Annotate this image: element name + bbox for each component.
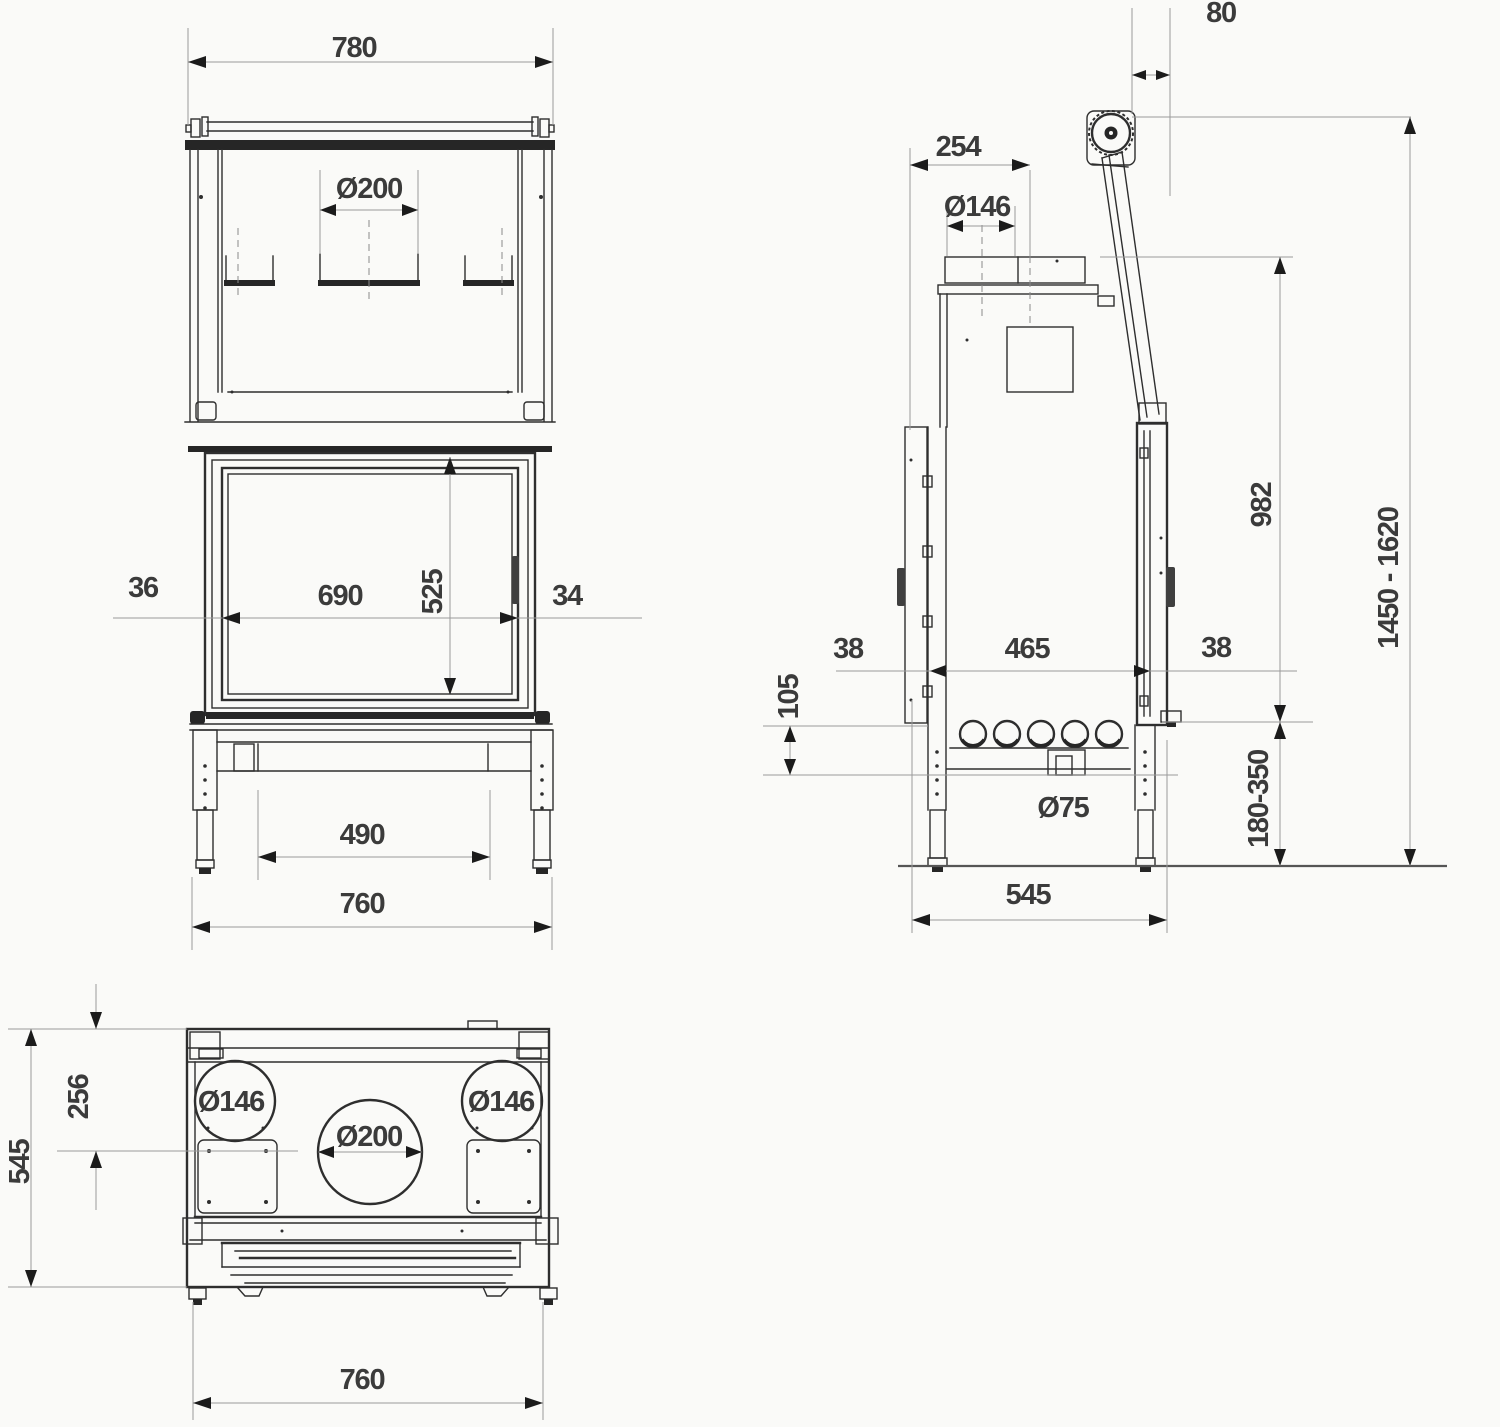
top-view: 256 545 Ø146 Ø146 Ø200 760	[4, 984, 558, 1420]
dim-side-rail-offset: 80	[1206, 0, 1236, 29]
air-connectors	[960, 721, 1122, 747]
top-view-outline	[187, 1029, 549, 1287]
dim-top-depth: 545	[4, 1139, 36, 1185]
dim-side-gap-back: 38	[833, 633, 864, 665]
top-view-body	[183, 1021, 558, 1305]
front-view: 780 Ø200 36 690 34 525 490	[113, 28, 642, 950]
dim-top-flue-from-back: 256	[63, 1074, 95, 1120]
dim-side-leg-range: 180-350	[1243, 750, 1275, 848]
dim-front-glass-height: 525	[417, 569, 449, 615]
dim-side-body-height: 982	[1246, 483, 1278, 528]
front-top-plate	[185, 140, 555, 150]
pulley-mechanism	[1087, 111, 1135, 167]
front-view-dimensions: 780 Ø200 36 690 34 525 490	[113, 28, 642, 950]
side-connection-box	[1007, 327, 1073, 392]
side-door	[1137, 423, 1181, 727]
front-view-body	[185, 117, 555, 874]
dim-front-frame-right: 34	[552, 580, 583, 612]
front-door-glass	[205, 453, 535, 715]
dim-top-flue: Ø200	[336, 1121, 402, 1153]
dim-side-gap-front: 38	[1201, 632, 1232, 664]
dim-front-leg-spacing: 490	[340, 819, 385, 851]
dim-top-duct-right: Ø146	[468, 1086, 535, 1118]
dim-side-air-connector: Ø75	[1037, 792, 1089, 824]
dim-front-glass-width: 690	[318, 580, 363, 612]
dim-side-flue-pipe: Ø146	[944, 191, 1011, 223]
technical-drawing: 780 Ø200 36 690 34 525 490	[0, 0, 1500, 1427]
side-view: 80 254 Ø146 982 1450 -	[763, 0, 1447, 933]
front-base-legs	[190, 724, 553, 874]
dim-top-duct-left: Ø146	[198, 1086, 265, 1118]
dim-side-plinth: 105	[773, 674, 805, 720]
top-view-dimensions: 256 545 Ø146 Ø146 Ø200 760	[4, 984, 543, 1420]
drawing-canvas: 780 Ø200 36 690 34 525 490	[0, 0, 1500, 1427]
top-door-edge	[222, 1243, 520, 1283]
side-flue-spigot	[945, 257, 1085, 283]
dim-top-base-width: 760	[340, 1364, 385, 1396]
dim-front-flue: Ø200	[336, 173, 402, 205]
dim-front-top-width: 780	[332, 32, 377, 64]
dim-front-frame-left: 36	[128, 572, 159, 604]
dim-front-base-width: 760	[340, 888, 385, 920]
dim-side-depth: 545	[1006, 879, 1052, 911]
dim-side-total-height: 1450 - 1620	[1373, 507, 1405, 649]
dim-side-flue-offset: 254	[936, 131, 982, 163]
side-view-body	[897, 111, 1447, 872]
dim-side-leg-spacing: 465	[1005, 633, 1051, 665]
door-handle	[512, 556, 519, 604]
